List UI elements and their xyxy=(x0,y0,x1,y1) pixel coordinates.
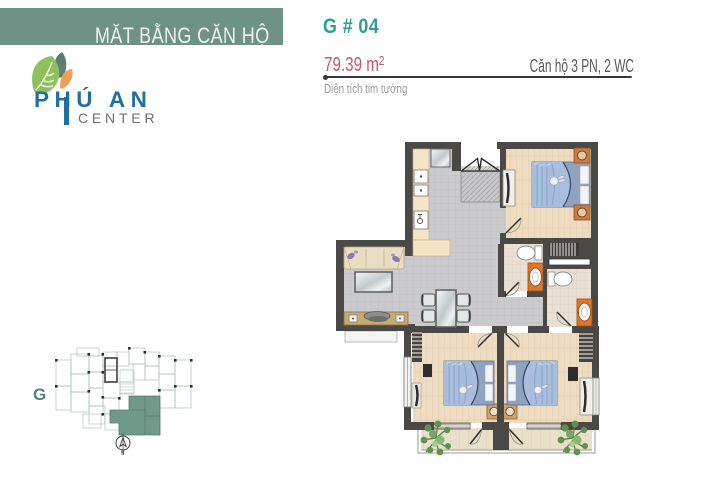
svg-text:N: N xyxy=(121,451,125,457)
